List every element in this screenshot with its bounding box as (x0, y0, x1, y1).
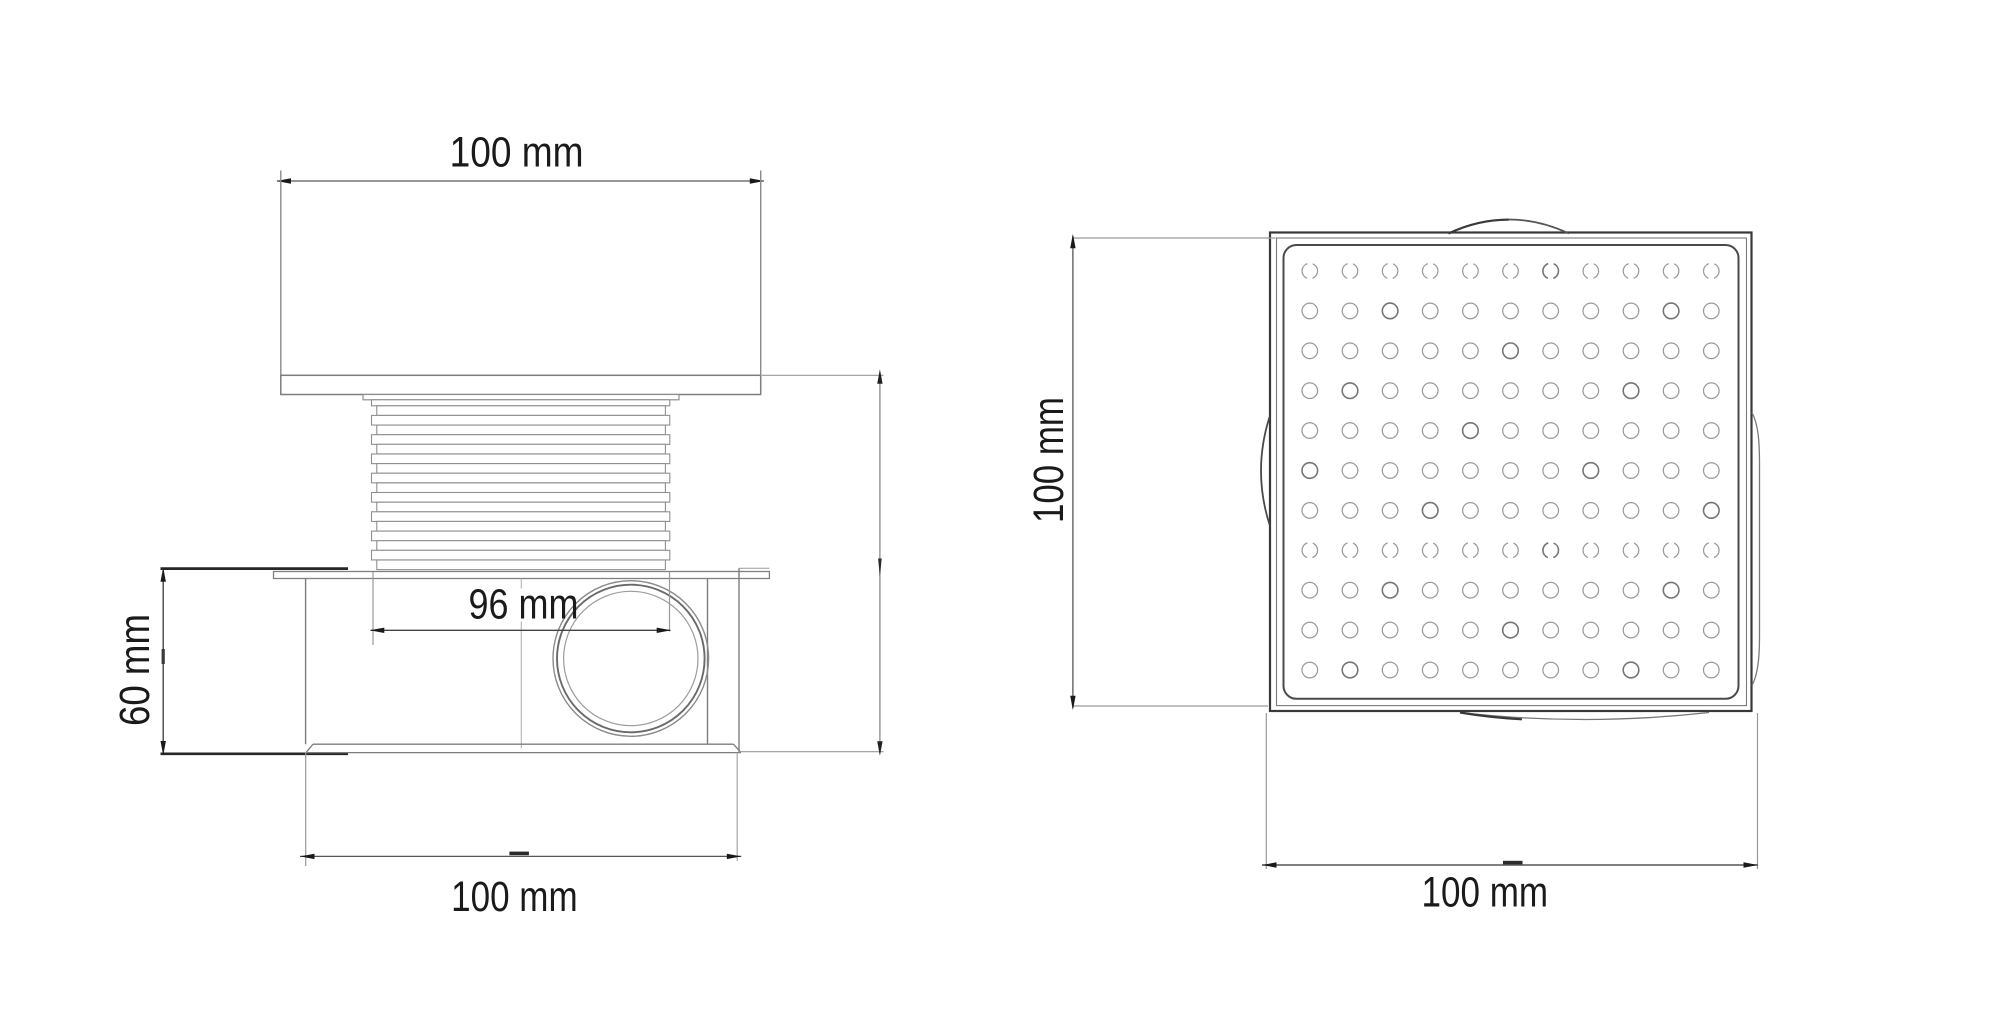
svg-text:100 mm: 100 mm (451, 873, 578, 921)
svg-text:100 mm: 100 mm (450, 129, 584, 177)
svg-text:96 mm: 96 mm (469, 581, 579, 629)
svg-text:100 mm: 100 mm (1422, 869, 1549, 917)
svg-text:100 mm: 100 mm (1025, 397, 1073, 523)
svg-text:60 mm: 60 mm (111, 614, 159, 726)
